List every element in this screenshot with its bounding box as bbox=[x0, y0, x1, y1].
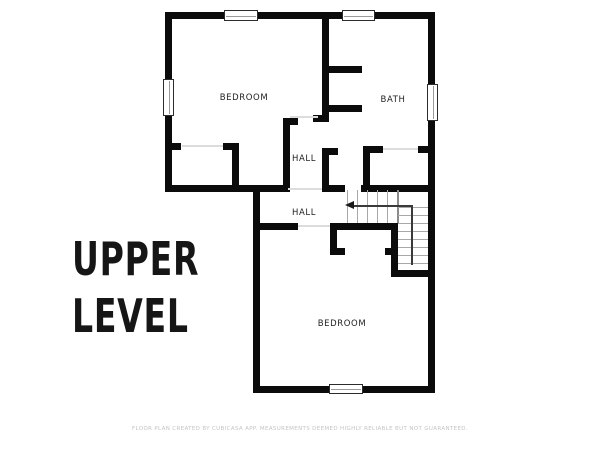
room-label-bath: BATH bbox=[381, 95, 406, 105]
stair-tread bbox=[398, 263, 428, 264]
wall bbox=[253, 185, 260, 393]
door-opening bbox=[383, 148, 418, 150]
wall bbox=[283, 118, 290, 192]
stair-tread bbox=[398, 239, 428, 240]
wall bbox=[322, 12, 329, 122]
stair-tread bbox=[357, 190, 358, 223]
stair-tread bbox=[387, 190, 388, 223]
wall bbox=[329, 105, 362, 112]
stair-tread bbox=[398, 215, 428, 216]
window bbox=[329, 384, 363, 394]
room-label-bedroom-upper: BEDROOM bbox=[220, 93, 269, 103]
stair-tread bbox=[377, 190, 378, 223]
title-upper: UPPER bbox=[72, 236, 199, 282]
wall bbox=[223, 143, 239, 150]
window bbox=[163, 79, 174, 116]
wall bbox=[329, 148, 338, 155]
wall bbox=[428, 12, 435, 393]
wall bbox=[418, 146, 435, 153]
wall bbox=[363, 146, 383, 153]
stair-direction-line bbox=[411, 205, 413, 265]
stair-tread bbox=[398, 231, 428, 232]
wall bbox=[330, 223, 398, 230]
title-level: LEVEL bbox=[72, 293, 189, 339]
wall bbox=[322, 148, 329, 192]
wall bbox=[391, 270, 435, 277]
wall bbox=[391, 223, 398, 277]
door-opening bbox=[298, 225, 330, 227]
window bbox=[224, 10, 258, 21]
room-label-hall-upper: HALL bbox=[292, 154, 316, 164]
stair-direction-arrow-icon bbox=[345, 201, 354, 209]
window bbox=[342, 10, 375, 21]
room-label-hall-lower: HALL bbox=[292, 208, 316, 218]
stair-tread bbox=[398, 207, 428, 208]
stair-tread bbox=[398, 247, 428, 248]
stair-tread bbox=[398, 223, 428, 224]
floor-plan-canvas: BEDROOMBATHHALLHALLBEDROOM UPPER LEVEL F… bbox=[0, 0, 600, 450]
stair-tread bbox=[367, 190, 368, 223]
door-opening bbox=[288, 188, 322, 190]
room-label-bedroom-lower: BEDROOM bbox=[318, 319, 367, 329]
wall bbox=[363, 153, 370, 192]
wall bbox=[329, 66, 362, 73]
wall bbox=[232, 150, 239, 192]
wall bbox=[165, 12, 435, 19]
wall bbox=[165, 143, 181, 150]
stair-direction-line bbox=[353, 205, 412, 207]
door-opening bbox=[182, 145, 223, 147]
stair-tread bbox=[398, 255, 428, 256]
disclaimer-text: FLOOR PLAN CREATED BY CUBICASA APP. MEAS… bbox=[0, 426, 600, 432]
door-opening bbox=[290, 116, 318, 118]
wall bbox=[283, 118, 298, 125]
window bbox=[427, 84, 438, 121]
wall bbox=[330, 248, 345, 255]
wall bbox=[260, 223, 298, 230]
wall bbox=[165, 185, 288, 192]
